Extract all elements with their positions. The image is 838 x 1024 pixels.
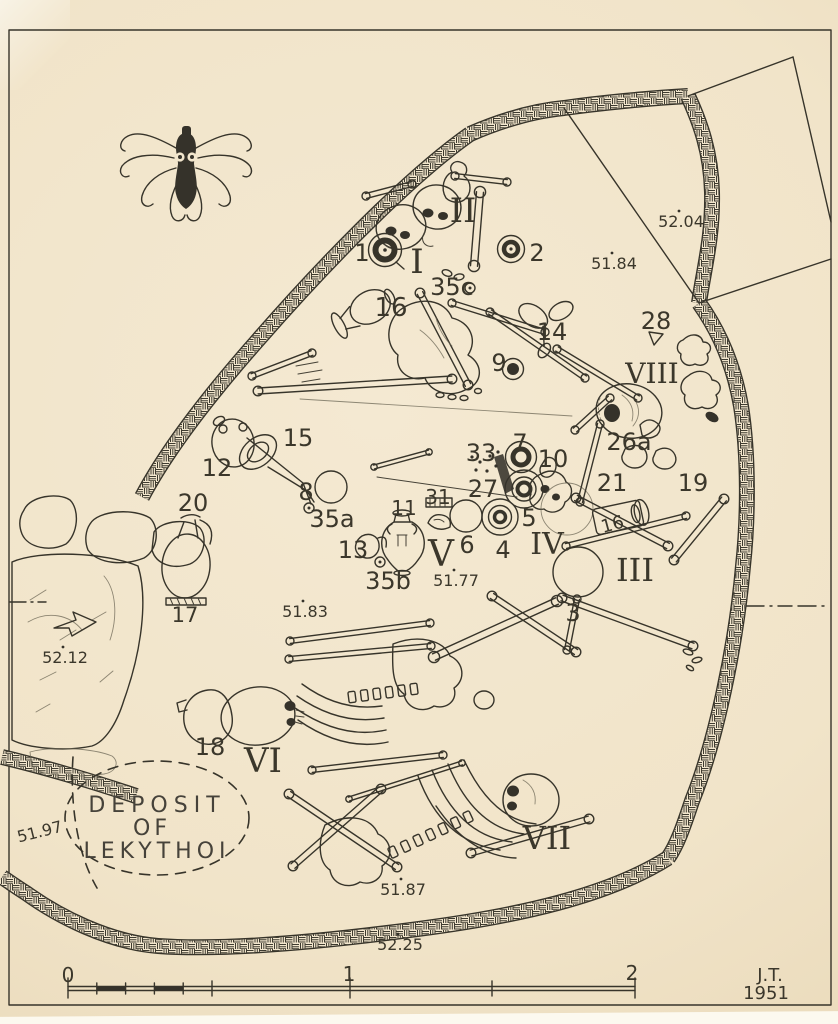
- label-35b: 35b: [365, 567, 411, 595]
- label-i: I: [410, 242, 423, 282]
- label-26a: 26a: [606, 428, 651, 456]
- excavation-plan-drawing: 1234567891011121314151616171819202126a27…: [0, 0, 838, 1024]
- label-vii: VII: [522, 819, 571, 857]
- label-1: 1: [354, 239, 369, 267]
- vertebra: [413, 834, 424, 847]
- label-28: 28: [641, 307, 672, 335]
- label-0: 0: [62, 963, 75, 987]
- vertebrae: [348, 683, 474, 858]
- scanned-plan-sheet: 1234567891011121314151616171819202126a27…: [0, 0, 838, 1024]
- label-v: V: [427, 534, 455, 575]
- vertebra: [385, 686, 393, 698]
- bone: [288, 784, 386, 871]
- bone: [253, 374, 457, 396]
- label-2: 2: [626, 961, 639, 985]
- label-35a: 35a: [309, 505, 354, 533]
- label-52-25: 52.25: [377, 935, 423, 954]
- label-27: 27: [468, 475, 499, 503]
- label-9: 9: [491, 349, 506, 377]
- label-2: 2: [529, 239, 544, 267]
- label-52-04: 52.04: [658, 212, 704, 231]
- label-vi: VI: [243, 741, 282, 781]
- bone: [284, 789, 402, 872]
- label-1: 1: [343, 962, 356, 986]
- label-8: 8: [298, 478, 313, 506]
- label-35c: 35c: [430, 273, 474, 301]
- vertebra: [373, 688, 381, 700]
- label-31: 31: [425, 485, 450, 509]
- label-11: 11: [391, 496, 416, 520]
- label-51-87: 51.87: [380, 880, 426, 899]
- vertebra: [410, 683, 418, 695]
- vertebra: [425, 828, 436, 841]
- bone: [286, 619, 434, 645]
- label-51-84: 51.84: [591, 254, 637, 273]
- label-7: 7: [512, 429, 527, 457]
- label-4: 4: [495, 536, 510, 564]
- bone: [371, 449, 432, 470]
- label-viii: VIII: [624, 357, 678, 390]
- bone: [451, 172, 511, 186]
- label-ii: II: [450, 191, 477, 231]
- label-16: 16: [374, 293, 407, 323]
- direction-arrow-icon: [54, 612, 96, 636]
- label-deposit: DEPOSIT: [88, 793, 225, 818]
- bone: [669, 494, 729, 565]
- label-6: 6: [459, 531, 474, 559]
- label-3: 3: [565, 599, 580, 627]
- label-17: 17: [172, 603, 199, 627]
- label-iii: III: [616, 551, 654, 589]
- label-51-83: 51.83: [282, 602, 328, 621]
- vertebra: [360, 689, 368, 701]
- plan-labels: 1234567891011121314151616171819202126a27…: [15, 191, 789, 1004]
- label-51-77: 51.77: [433, 571, 479, 590]
- label-19: 19: [678, 469, 709, 497]
- label-12: 12: [202, 454, 233, 482]
- vertebra: [463, 811, 474, 824]
- label-lekythoi: LEKYTHOI: [83, 839, 230, 864]
- label-14: 14: [537, 318, 568, 346]
- label-13: 13: [338, 536, 369, 564]
- bone: [308, 751, 447, 774]
- label-10: 10: [538, 445, 569, 473]
- label-of: OF: [133, 816, 171, 841]
- octopus-icon: [121, 126, 252, 221]
- bone: [285, 642, 435, 663]
- vertebra: [348, 691, 356, 703]
- label-20: 20: [178, 489, 209, 517]
- label-1951: 1951: [743, 983, 789, 1004]
- label-iv: IV: [530, 527, 565, 562]
- label-15: 15: [283, 424, 314, 452]
- label-51-97: 51.97: [15, 817, 64, 847]
- label-21: 21: [597, 469, 628, 497]
- vertebra: [400, 840, 411, 853]
- label-18: 18: [195, 733, 226, 761]
- label-52-12: 52.12: [42, 648, 88, 667]
- label-33: 33: [466, 439, 497, 467]
- vertebra: [450, 816, 461, 829]
